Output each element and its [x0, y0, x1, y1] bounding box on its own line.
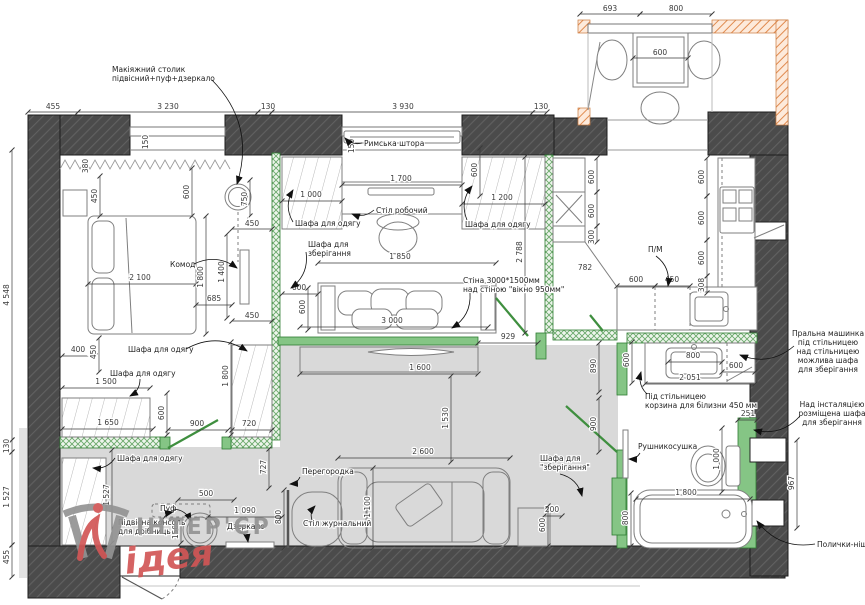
dimension-label: 1 000 [712, 448, 721, 470]
dimension-label: 455 [2, 550, 11, 565]
new-wall [612, 478, 626, 535]
annotation-label: під стільницею [798, 338, 858, 347]
dimension-label: 1 800 [196, 266, 205, 288]
hall-mirror [226, 542, 274, 548]
dimension-label: 900 [190, 419, 205, 428]
dimension-label: 130 [261, 102, 276, 111]
dimension-label: 1 500 [95, 377, 117, 386]
dimension-label: 1 600 [409, 363, 431, 372]
kitchen-counter-bottom [617, 287, 757, 330]
dimension-label: 727 [259, 460, 268, 475]
toilet-cistern [726, 446, 740, 486]
new-wall [278, 337, 478, 345]
dimension-label: 308 [697, 278, 706, 293]
annotation-label: Пральна машинка [792, 329, 864, 338]
dimension-label: 450 [665, 275, 680, 284]
annotation-label: можлива шафа [798, 356, 859, 365]
dimension-label: 600 [729, 361, 744, 370]
dimension-label: 1 100 [363, 496, 372, 518]
dimension-label: 890 [589, 359, 598, 374]
logo-icon [93, 503, 103, 513]
dimension-label: 450 [89, 345, 98, 360]
annotation-label: для зберігання [798, 365, 858, 374]
dimension-label: 900 [589, 417, 598, 432]
dimension-label: 450 [90, 189, 99, 204]
dimension-label: 300 [587, 230, 596, 245]
load-bearing-wall [28, 115, 60, 577]
door-leaf-office [496, 298, 528, 336]
kitchen-counter-left [553, 158, 585, 242]
annotation-leader [352, 210, 374, 216]
monitor [368, 188, 434, 195]
annotation-label: розміщена шафа [798, 409, 865, 418]
dimension-label: 800 [621, 511, 630, 526]
dimension-label: 2 100 [129, 273, 151, 282]
balcony-chair [597, 40, 627, 80]
new-wall [536, 333, 546, 359]
exterior-line [19, 428, 27, 578]
dimension-label: 750 [240, 192, 249, 207]
new-wall [222, 437, 231, 449]
insulated-wall [776, 20, 788, 125]
dimension-label: 600 [697, 251, 706, 266]
annotation-leader [629, 453, 640, 459]
stove [720, 187, 754, 233]
dimension-label: 500 [199, 489, 214, 498]
dimension-label: 1 527 [2, 486, 11, 508]
dimension-label: 800 [686, 351, 701, 360]
dimension-label: 400 [71, 345, 86, 354]
dimension-label: 2 051 [679, 373, 701, 382]
dimension-label: 3 930 [392, 102, 414, 111]
dimension-label: 2 788 [515, 241, 524, 263]
annotation-label: Стіна 3000*1500мм [463, 276, 540, 285]
dimension-label: 1 527 [102, 484, 111, 506]
annotation-label: Полички-ніші [817, 540, 865, 549]
wall-niche [752, 500, 784, 526]
balcony-glazing [588, 24, 712, 33]
annotation-label: Шафа для одягу [295, 219, 361, 228]
nightstand [63, 190, 87, 216]
partition-wall [545, 155, 553, 333]
floor-area [280, 345, 618, 548]
partition-wall [272, 153, 280, 440]
dimension-label: 929 [501, 332, 516, 341]
dimension-label: 1 400 [217, 261, 226, 283]
annotation-label: над стільницею [797, 347, 860, 356]
annotation-label: Шафа для одягу [117, 454, 183, 463]
dimension-label: 967 [787, 476, 796, 491]
annotation-leader [452, 293, 470, 328]
annotation-label: Під стільницею [645, 392, 706, 401]
dimension-label: 1 700 [390, 174, 412, 183]
dimension-label: 1 530 [441, 407, 450, 429]
partition-wall [60, 437, 160, 448]
dimension-label: 3 230 [157, 102, 179, 111]
annotation-label: Шафа для одягу [128, 345, 194, 354]
annotation-label: Комод [170, 260, 195, 269]
annotation-label: Перегородка [302, 467, 354, 476]
dimension-label: 600 [587, 204, 596, 219]
annotation-label: Стіл журнальний [303, 519, 371, 528]
annotation-label: для зберігання [802, 418, 862, 427]
bench-post [321, 286, 335, 330]
dimension-label: 1 650 [97, 418, 119, 427]
partition-wall [627, 333, 757, 343]
dimension-label: 130 [534, 102, 549, 111]
dimension-label: 1 200 [491, 193, 513, 202]
annotation-label: над стіною "вікно 950мм" [463, 285, 564, 294]
balcony-chair [688, 41, 720, 79]
dimension-label: 600 [653, 48, 668, 57]
annotation-label: Стіл робочий [376, 206, 428, 215]
dresser [240, 250, 249, 304]
dimension-label: 600 [538, 518, 547, 533]
dimension-label: 600 [622, 353, 631, 368]
dimension-label: 251 [741, 409, 756, 418]
annotation-label: підвісний+пуф+дзеркало [112, 74, 215, 83]
annotation-label: П/М [648, 245, 663, 254]
dimension-label: 600 [697, 170, 706, 185]
dimension-label: 455 [46, 102, 61, 111]
annotation-label: Шафа для одягу [465, 220, 531, 229]
insulated-wall [578, 108, 590, 125]
partition-wall [231, 437, 272, 448]
annotation-label: Над інсталяцією [800, 400, 865, 409]
dimension-label: 380 [81, 159, 90, 174]
dimension-label: 685 [207, 294, 222, 303]
dimension-label: 150 [141, 135, 150, 150]
annotation-label: Римська штора [364, 139, 424, 148]
annotation-label: Шафа для [308, 240, 349, 249]
dimension-label: 450 [245, 311, 260, 320]
dimension-label: 600 [298, 300, 307, 315]
towel-dryer [623, 430, 628, 478]
dimension-label: 600 [182, 185, 191, 200]
load-bearing-wall [462, 115, 554, 155]
dimension-label: 600 [629, 275, 644, 284]
dimension-label: 1 850 [389, 252, 411, 261]
dimension-label: 4 548 [2, 284, 11, 306]
dimension-label: 3 000 [381, 316, 403, 325]
wall-niche [750, 438, 786, 462]
dimension-label: 1 800 [675, 488, 697, 497]
partition-wall [553, 330, 617, 340]
pillow [92, 221, 114, 273]
dimension-label: 2 600 [412, 447, 434, 456]
entry-door-arc [162, 578, 179, 599]
new-wall [617, 343, 627, 395]
dimension-label: 720 [242, 419, 257, 428]
dimension-label: 1 000 [300, 190, 322, 199]
chair [379, 222, 417, 254]
annotation-label: Пуф [160, 504, 177, 513]
annotation-label: Шафа для одягу [110, 369, 176, 378]
dimension-label: 600 [292, 283, 307, 292]
floor-plan-page: 4553 2301303 9301306938006004 5481301 52… [0, 0, 865, 605]
dimension-label: 600 [157, 406, 166, 421]
annotation-label: "зберігання" [540, 463, 590, 472]
dimension-label: 130 [2, 439, 11, 454]
load-bearing-wall [180, 546, 785, 578]
annotation-label: зберігання [308, 249, 351, 258]
bedroom-window [130, 127, 225, 136]
annotation-label: корзина для білизни 450 мм [645, 401, 757, 410]
balcony-table [633, 33, 688, 87]
dimension-label: 693 [603, 4, 618, 13]
pillow [92, 278, 114, 330]
annotation-label: Шафа для [540, 454, 581, 463]
annotation-leader [130, 379, 140, 396]
dimension-label: 600 [470, 163, 479, 178]
dimension-label: 782 [578, 263, 593, 272]
floor-plan-drawing: 4553 2301303 9301306938006004 5481301 52… [0, 0, 865, 605]
dimension-label: 1 800 [221, 365, 230, 387]
dimension-label: 600 [697, 211, 706, 226]
dimension-label: 800 [669, 4, 684, 13]
balcony-chair [641, 92, 679, 124]
dimension-label: 450 [245, 219, 260, 228]
annotation-label: Рушникосушка [638, 442, 697, 451]
annotation-label: Макіяжний столик [112, 65, 186, 74]
dimension-label: 1 090 [234, 506, 256, 515]
dimension-label: 600 [587, 170, 596, 185]
door-leaf-kitchen [590, 315, 603, 331]
